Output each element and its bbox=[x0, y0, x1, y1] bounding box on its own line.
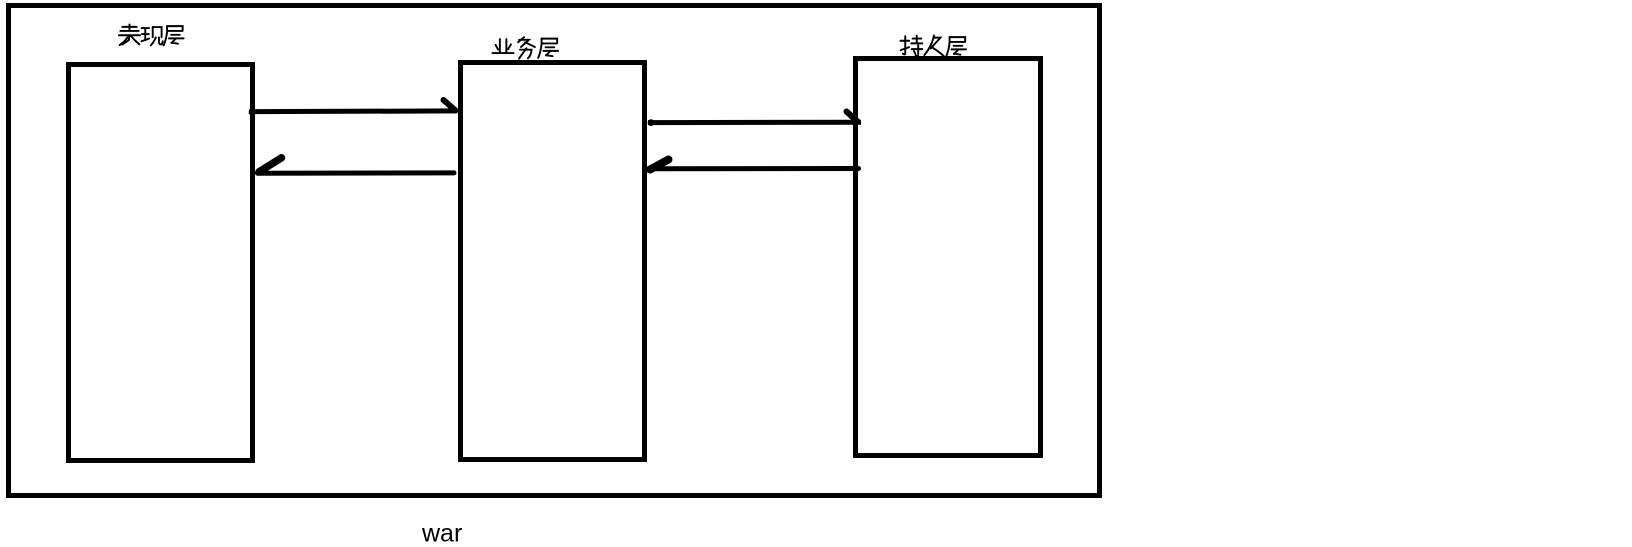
svg-text:war: war bbox=[421, 520, 462, 547]
